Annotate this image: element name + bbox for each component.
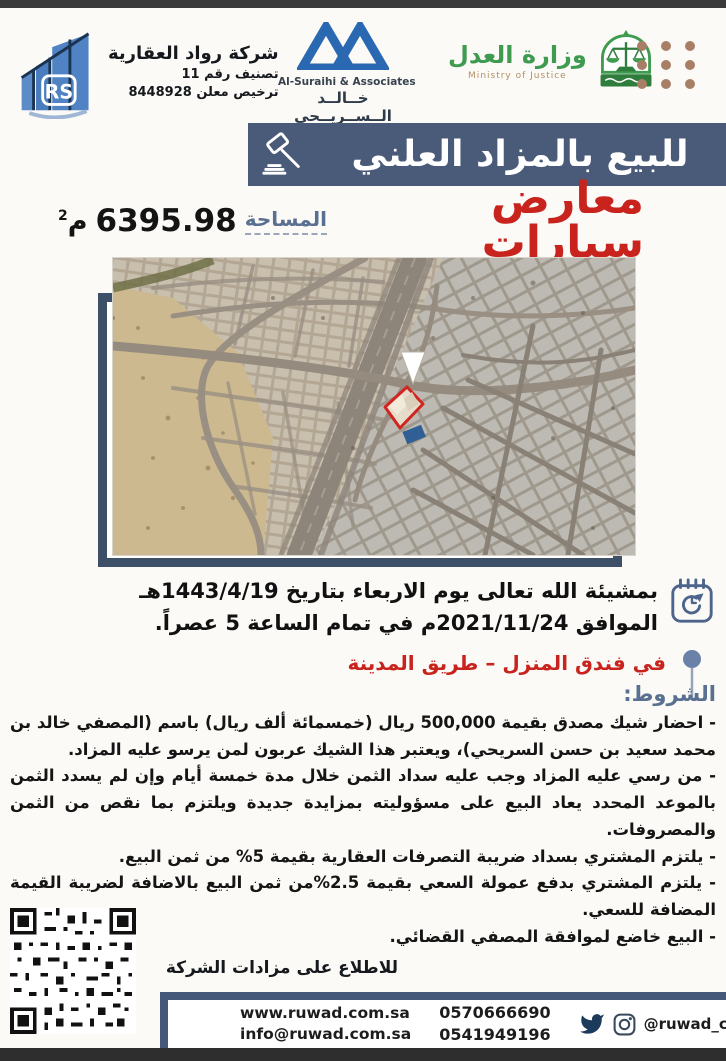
- satellite-map: [113, 258, 635, 555]
- social-handle[interactable]: @ruwad_company: [644, 1015, 726, 1033]
- bottom-divider-bar: [0, 1048, 726, 1061]
- subject-row: معارض سيارات المساحة 6395.98 م2: [58, 190, 644, 252]
- area-label: المساحة: [245, 207, 327, 235]
- ministry-name-ar: وزارة العدل: [448, 41, 587, 69]
- ruwad-building-logo-icon: RS: [14, 24, 100, 119]
- lawfirm-name-ar: خــالــد الــســريــحي: [278, 89, 408, 125]
- company-brand: RS شركة رواد العقارية تصنيف رقم 11 ترخيص…: [14, 24, 279, 119]
- phone-number-2[interactable]: 0541949196: [439, 1024, 550, 1046]
- phone-number-1[interactable]: 0570666690: [439, 1002, 550, 1024]
- website-link[interactable]: www.ruwad.com.sa: [240, 1003, 411, 1024]
- lawfirm-aa-logo-icon: [297, 22, 389, 70]
- lawfirm-brand: Al-Suraihi & Associates خــالــد الــســ…: [278, 22, 408, 135]
- dot: [685, 79, 695, 89]
- qr-code: [10, 906, 136, 1036]
- ministry-brand: وزارة العدل Ministry of Justice: [448, 28, 659, 94]
- dot: [685, 60, 695, 70]
- top-divider-bar: [0, 0, 726, 8]
- lawfirm-name-en: Al-Suraihi & Associates: [278, 76, 408, 88]
- dot: [661, 79, 671, 89]
- area-value: 6395.98: [96, 203, 237, 239]
- auction-location: في فندق المنزل – طريق المدينة: [347, 651, 666, 675]
- company-classification: تصنيف رقم 11: [108, 67, 279, 82]
- auction-date-gregorian: الموافق 2021/11/24م في تمام الساعة 5 عصر…: [139, 608, 658, 640]
- twitter-icon[interactable]: [579, 1011, 605, 1037]
- auction-flyer: RS شركة رواد العقارية تصنيف رقم 11 ترخيص…: [0, 0, 726, 1061]
- footer: www.ruwad.com.sa info@ruwad.com.sa 05706…: [168, 1000, 726, 1048]
- dot: [661, 60, 671, 70]
- footer-frame: [160, 992, 726, 1000]
- ministry-name-en: Ministry of Justice: [448, 71, 587, 81]
- instagram-icon[interactable]: [612, 1012, 637, 1037]
- qr-caption: للاطلاع على مزادات الشركة: [138, 958, 398, 978]
- condition-item: - من رسي عليه المزاد وجب عليه سداد الثمن…: [10, 763, 716, 843]
- company-license: ترخيص معلن 8448928: [108, 85, 279, 100]
- area-unit: م2: [58, 206, 88, 237]
- dot: [685, 41, 695, 51]
- dot: [661, 41, 671, 51]
- dot: [637, 60, 647, 70]
- condition-item: - احضار شيك مصدق بقيمة 500,000 ريال (خمس…: [10, 710, 716, 763]
- dot: [637, 79, 647, 89]
- dot: [637, 41, 647, 51]
- email-link[interactable]: info@ruwad.com.sa: [240, 1024, 411, 1045]
- svg-text:RS: RS: [45, 81, 73, 104]
- calendar-clock-icon: [668, 576, 716, 626]
- dots-grid-decoration: [630, 36, 702, 94]
- company-name: شركة رواد العقارية: [108, 43, 279, 64]
- condition-item: - يلتزم المشتري بسداد ضريبة التصرفات الع…: [10, 844, 716, 871]
- conditions-heading: الشروط:: [10, 682, 716, 706]
- footer-frame: [160, 992, 168, 1048]
- banner-title: للبيع بالمزاد العلني: [306, 137, 726, 173]
- area-info: المساحة 6395.98 م2: [58, 203, 327, 239]
- auction-date-hijri: بمشيئة الله تعالى يوم الاربعاء بتاريخ 14…: [139, 576, 658, 608]
- gavel-icon: [260, 132, 306, 178]
- property-type-title: معارض سيارات: [327, 177, 644, 265]
